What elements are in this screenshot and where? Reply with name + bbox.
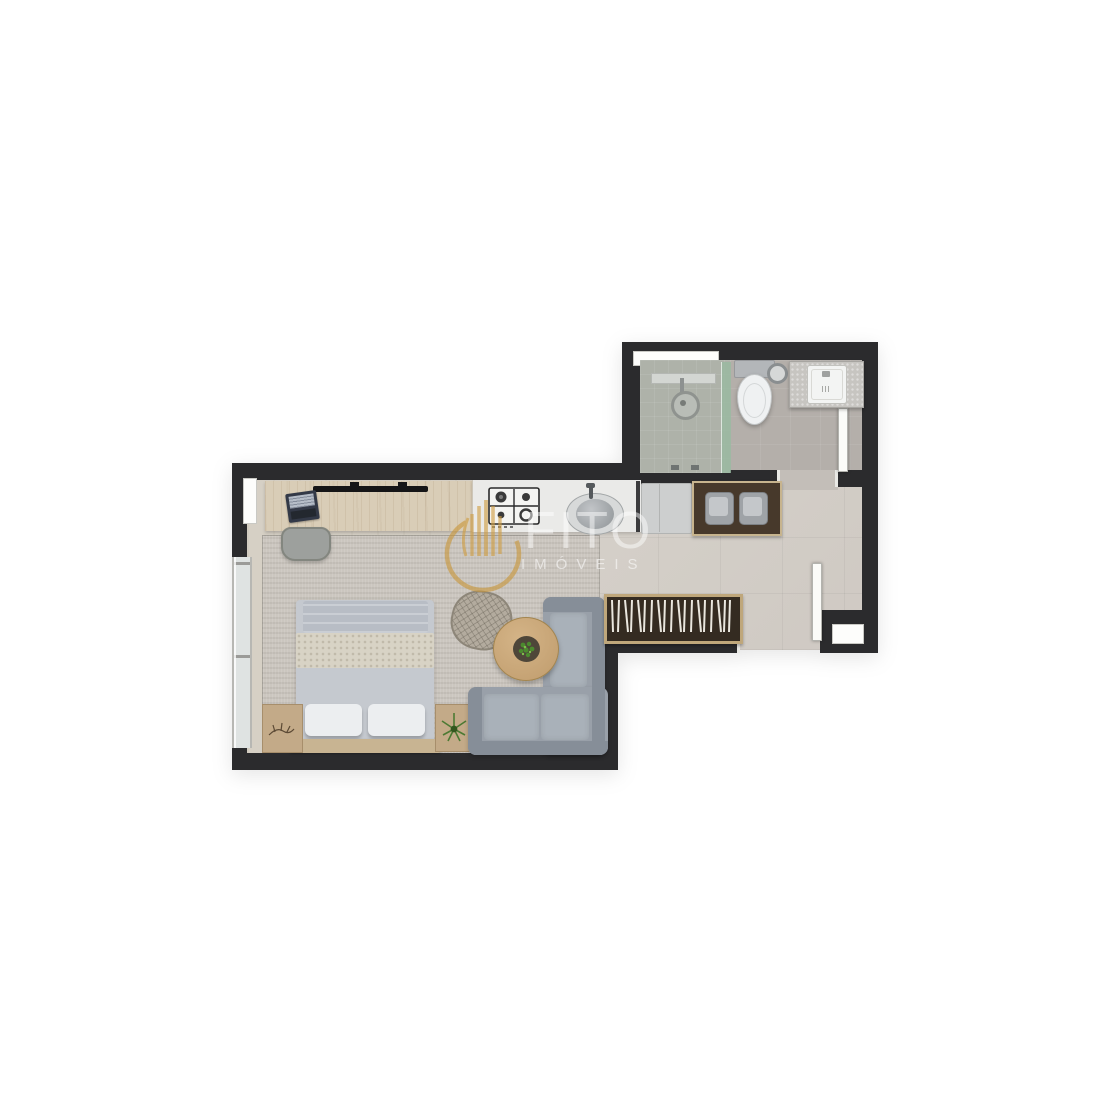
stool bbox=[739, 492, 768, 525]
nightstand-left bbox=[262, 704, 303, 753]
bedroom-glass-door bbox=[232, 557, 252, 748]
laptop bbox=[285, 490, 320, 523]
toilet-paper-roll bbox=[767, 363, 788, 384]
kitchen-sink bbox=[566, 493, 624, 535]
drain-center bbox=[680, 400, 686, 406]
door-jamb bbox=[835, 470, 838, 487]
branch-decor-icon bbox=[263, 705, 300, 750]
desk-chair bbox=[281, 527, 331, 561]
shower-door-handle bbox=[691, 465, 699, 470]
tv-mount bbox=[350, 482, 359, 486]
sofa-seat-cushion bbox=[484, 694, 539, 740]
stool-cushion bbox=[743, 497, 762, 516]
counter-end-divider bbox=[636, 481, 640, 532]
shower-door-handle bbox=[671, 465, 679, 470]
stool bbox=[705, 492, 734, 525]
fridge bbox=[641, 483, 692, 534]
shower-glass-panel bbox=[721, 362, 731, 473]
apartment-floor-plan: FITO IMÓVEIS bbox=[0, 0, 1114, 1114]
toilet-seat-line bbox=[743, 383, 766, 418]
bed-blanket bbox=[296, 633, 434, 668]
living-top-wall bbox=[232, 463, 640, 480]
tv-mount bbox=[398, 482, 407, 486]
sofa-armrest bbox=[468, 687, 482, 755]
basin-drain-grid bbox=[822, 386, 831, 392]
bed-head-fold bbox=[303, 601, 428, 633]
slatted-bench bbox=[604, 594, 743, 644]
sink-faucet-knob bbox=[586, 483, 595, 488]
fridge-divider bbox=[659, 484, 660, 532]
shower-drain bbox=[671, 391, 700, 420]
entrance-door bbox=[812, 563, 822, 641]
tv-soundbar bbox=[313, 486, 428, 492]
pillow bbox=[368, 704, 425, 736]
basin-faucet bbox=[822, 371, 830, 377]
sofa-seat-cushion bbox=[541, 694, 589, 740]
laptop-keyboard bbox=[291, 508, 317, 519]
bench-slats bbox=[607, 597, 734, 635]
living-bottom-wall bbox=[232, 753, 618, 770]
bedroom-window-slot bbox=[243, 478, 257, 524]
laptop-screen bbox=[289, 493, 315, 508]
plant-icon bbox=[513, 636, 540, 662]
bed-footboard bbox=[289, 739, 441, 753]
right-exterior-wall bbox=[862, 342, 878, 653]
sink-basin bbox=[576, 499, 614, 529]
bathroom-door bbox=[838, 408, 848, 472]
bathroom-doorway-floor bbox=[777, 470, 838, 490]
vanity-washbasin bbox=[807, 365, 847, 404]
sofa-back-bottom bbox=[468, 741, 608, 755]
pillow bbox=[305, 704, 362, 736]
cooktop bbox=[488, 487, 540, 529]
table-plant-bowl bbox=[513, 636, 540, 662]
stool-cushion bbox=[709, 497, 728, 516]
entrance-threshold bbox=[832, 624, 864, 644]
floor-plan-image: FITO IMÓVEIS bbox=[0, 0, 1114, 1114]
bathroom-door-stub-wall bbox=[838, 470, 862, 487]
